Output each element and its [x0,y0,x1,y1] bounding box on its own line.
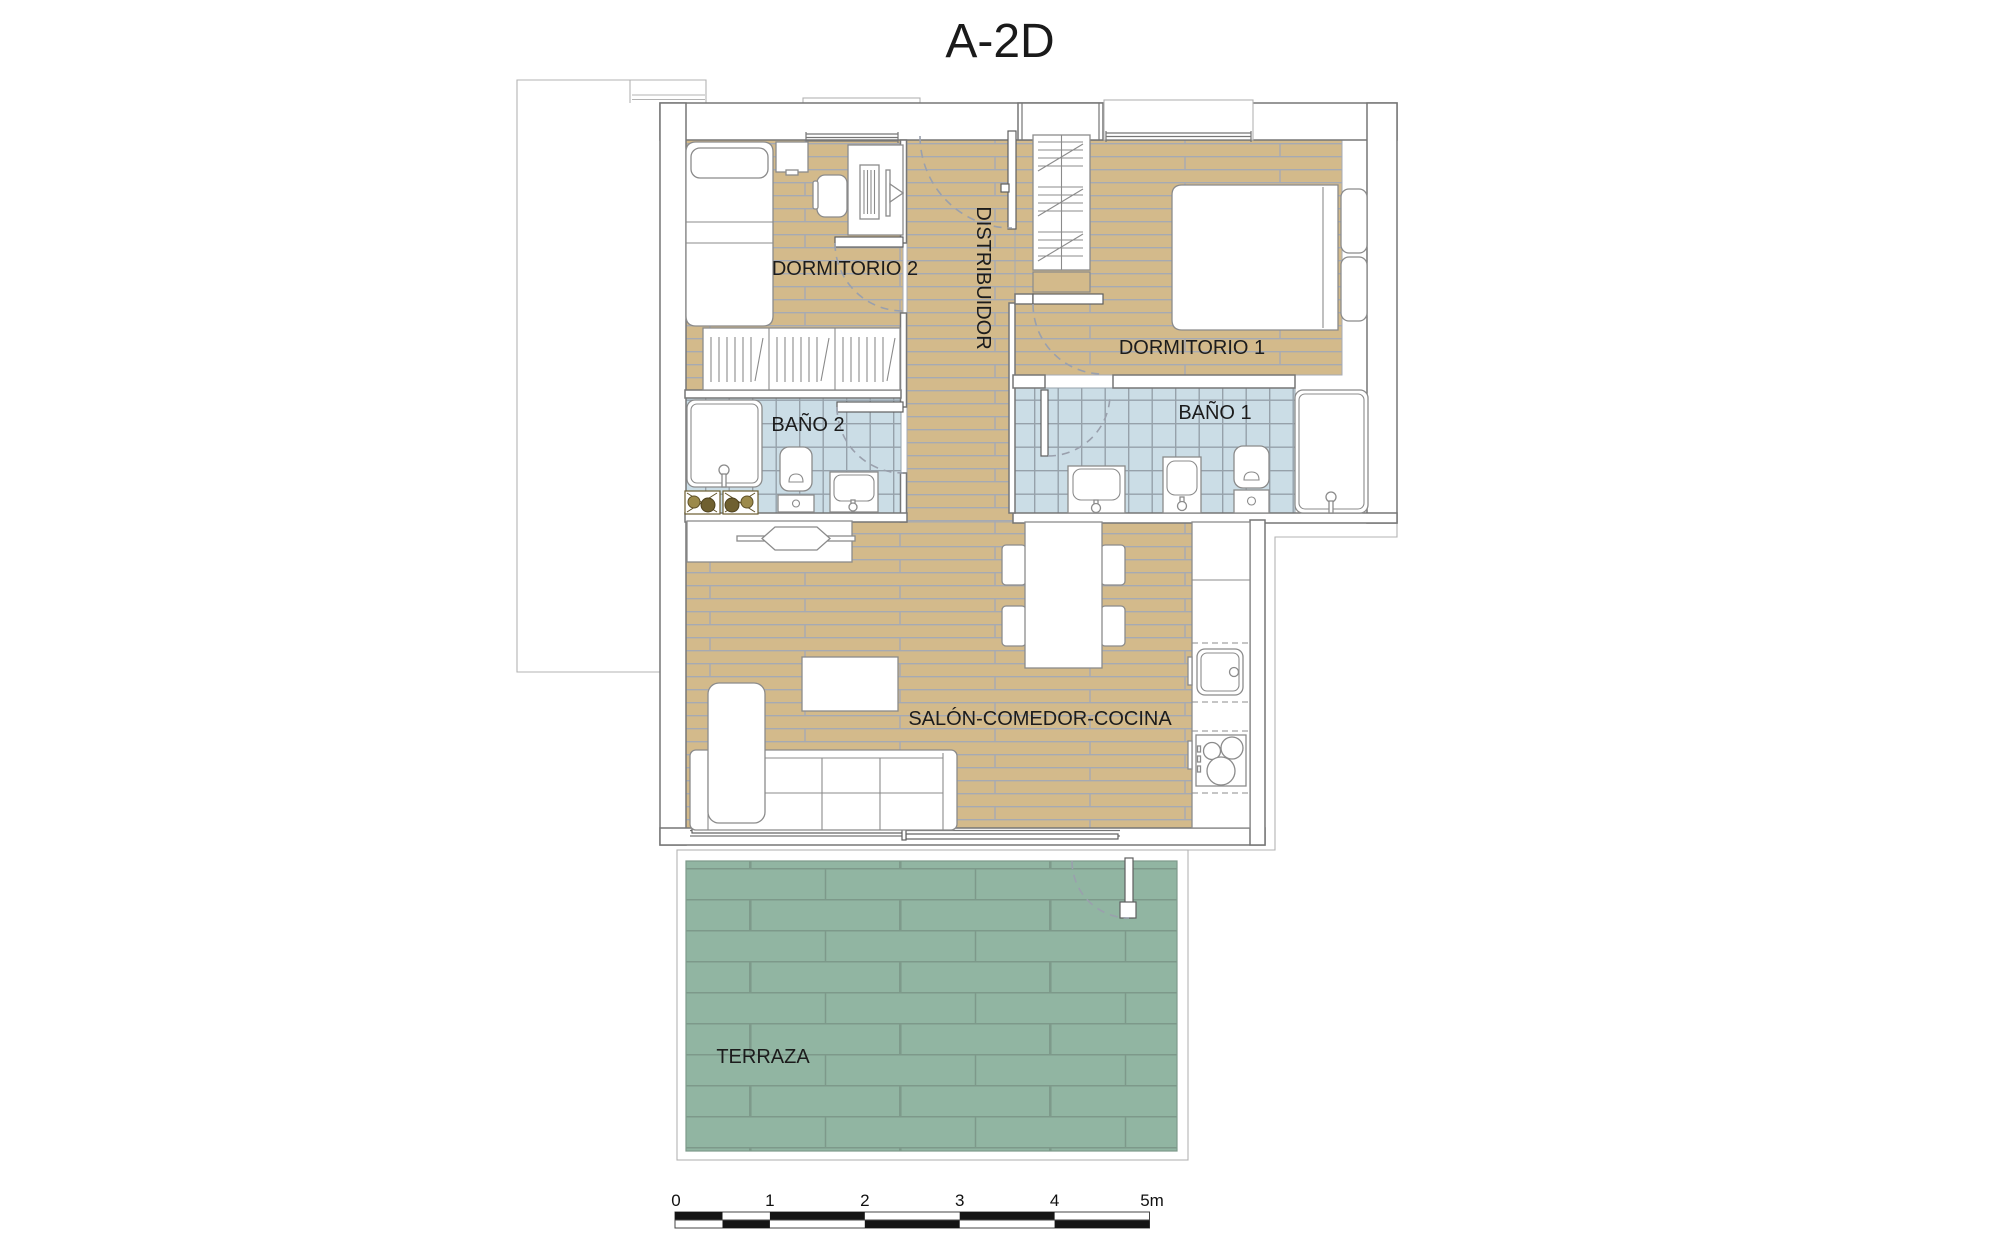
scale-bar-segment [1055,1220,1150,1228]
scale-tick-label: 0 [671,1191,680,1210]
scale-bar-segment [960,1212,1055,1220]
floor-plan-canvas: DORMITORIO 2 DORMITORIO 1 DISTRIBUIDOR B… [0,0,2000,1252]
tv-console [687,521,855,562]
dining-table [1025,522,1102,668]
washbasin [830,472,878,512]
room-label-terraza: TERRAZA [716,1046,810,1068]
shelf [1033,272,1090,292]
floor-distribuidor [907,140,1015,522]
pillow [691,148,768,178]
desk-chair [817,175,847,217]
toilet [1234,446,1269,513]
pillow [1341,257,1367,321]
room-label-distribuidor: DISTRIBUIDOR [972,206,994,349]
dining-chair [1002,545,1026,585]
chaise-longue [708,683,765,823]
window-dormitorio-1-icon [1106,131,1251,142]
terrace-floor [686,861,1177,1151]
scale-tick-label: 1 [765,1191,774,1210]
terrace [677,850,1188,1160]
scale-bar-segment [865,1220,960,1228]
dining-chair [1002,606,1026,646]
coffee-table [802,657,898,711]
scale-tick-label: 3 [955,1191,964,1210]
pillow [1341,189,1367,253]
dining-chair [1101,545,1125,585]
window-dormitorio-2-icon [806,132,898,143]
room-label-bano-2: BAÑO 2 [771,412,844,436]
kitchen-sink [1197,649,1243,695]
room-label-salon: SALÓN-COMEDOR-COCINA [908,707,1172,730]
kitchen-counter [1188,522,1250,828]
washbasin [1163,457,1201,513]
stove [1196,735,1246,786]
washbasin [1068,466,1125,513]
scale-tick-label: 2 [860,1191,869,1210]
plant [685,491,720,514]
page-title: A-2D [945,15,1054,68]
laptop-icon [860,165,879,219]
scale-bar-segment [723,1220,770,1228]
scale-tick-label: 5m [1140,1191,1164,1210]
dining-chair [1101,606,1125,646]
scale-bar-segment [770,1212,865,1220]
scale-bar: 0 1 2 3 4 5m [671,1191,1164,1228]
room-label-dormitorio-1: DORMITORIO 1 [1119,337,1265,359]
shower [687,400,762,487]
scale-bar-segment [675,1212,723,1220]
bed-double [1172,185,1338,330]
scale-tick-label: 4 [1050,1191,1059,1210]
room-label-bano-1: BAÑO 1 [1178,400,1251,424]
wardrobe [703,328,900,390]
toilet [778,447,814,512]
closet [1033,135,1090,292]
floor-plan-page: DORMITORIO 2 DORMITORIO 1 DISTRIBUIDOR B… [0,0,2000,1252]
shower [1295,390,1368,513]
room-label-dormitorio-2: DORMITORIO 2 [772,258,918,280]
plant [723,491,758,514]
nightstand [776,142,808,172]
